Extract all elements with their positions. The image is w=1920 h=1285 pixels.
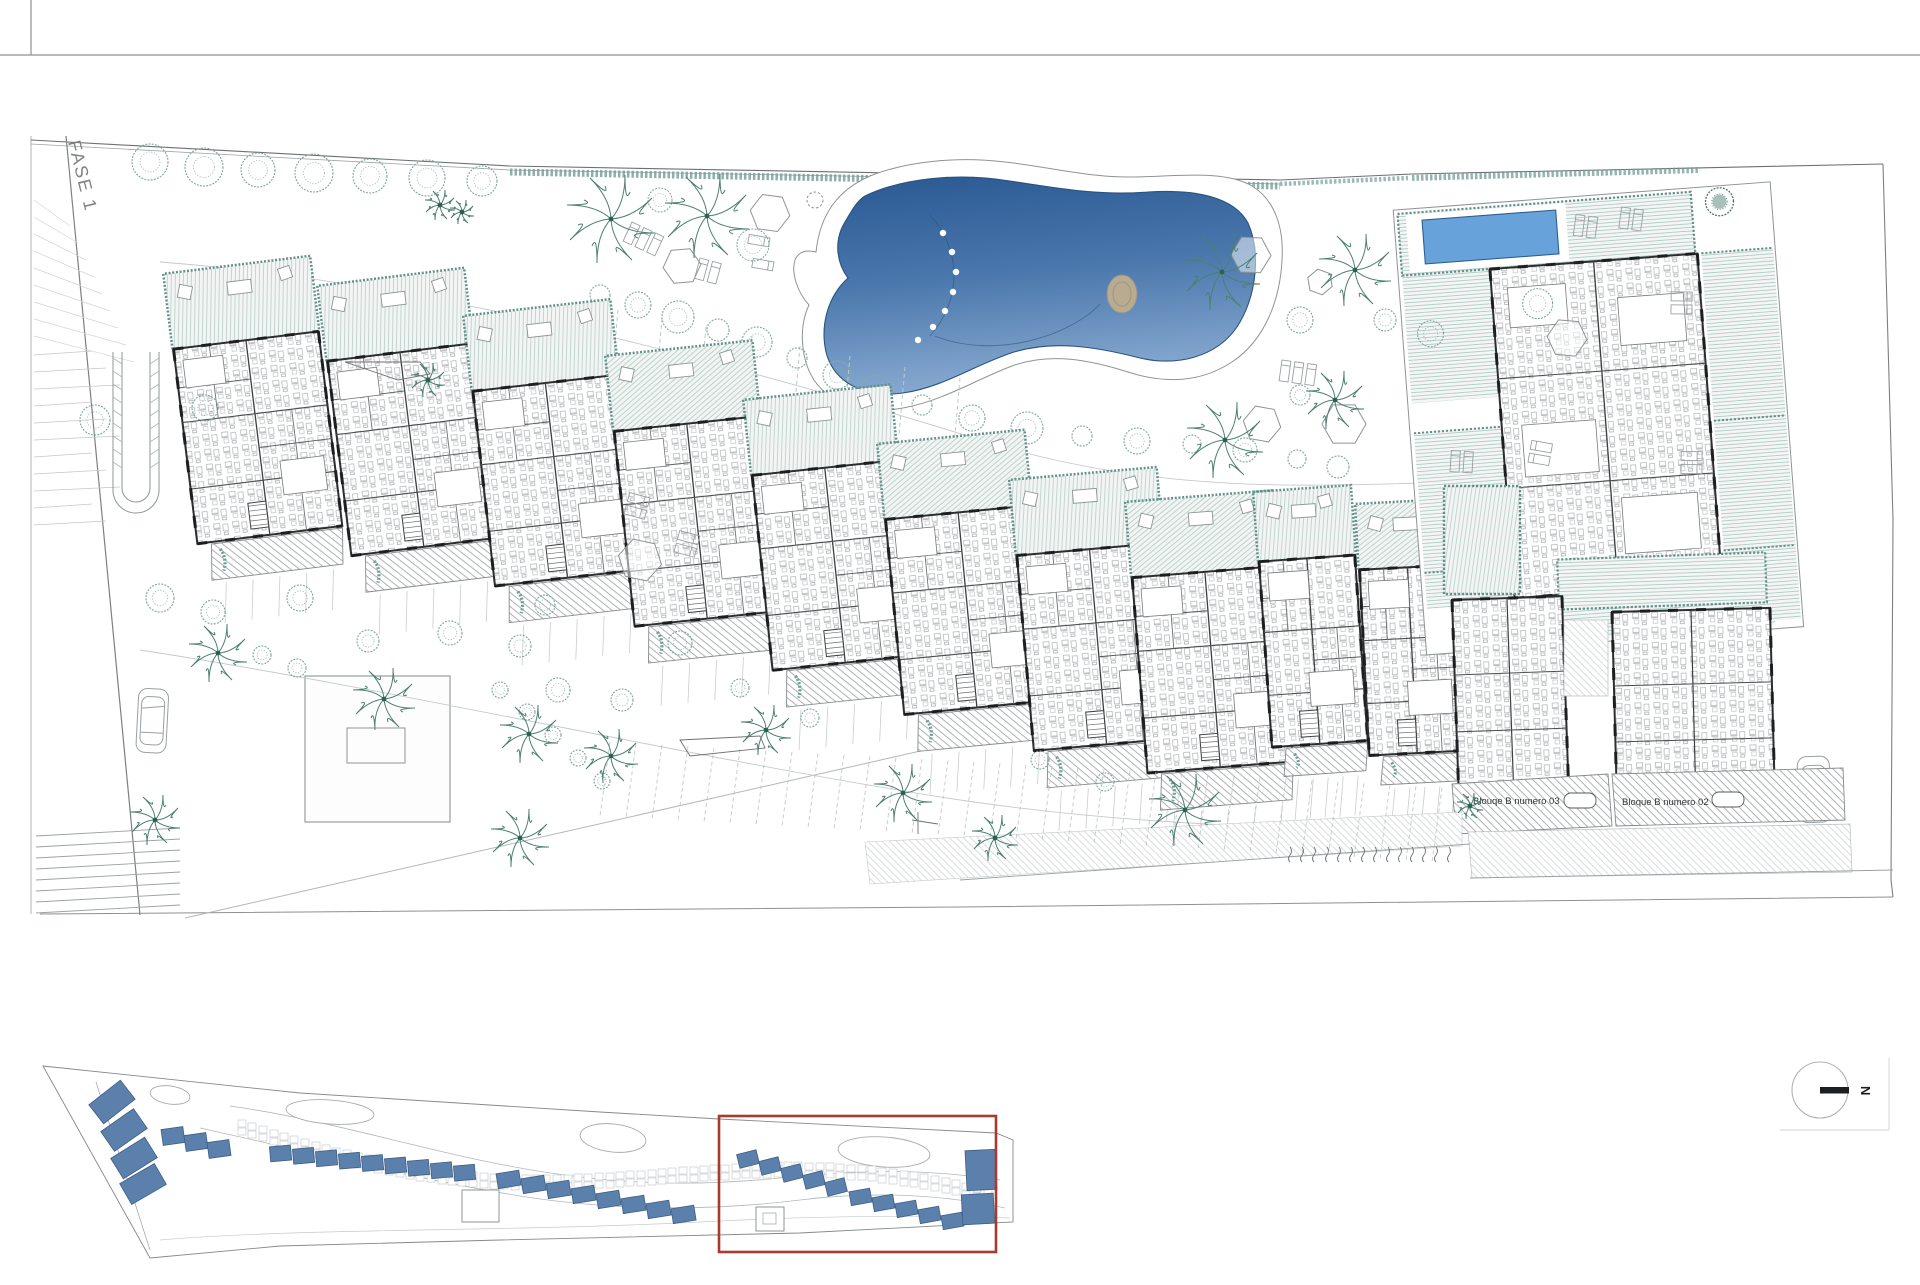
- svg-text:Blouqe B numero 03: Blouqe B numero 03: [1473, 796, 1560, 807]
- svg-text:Bloque B numero 02: Bloque B numero 02: [1622, 797, 1709, 808]
- svg-text:N: N: [1858, 1086, 1873, 1095]
